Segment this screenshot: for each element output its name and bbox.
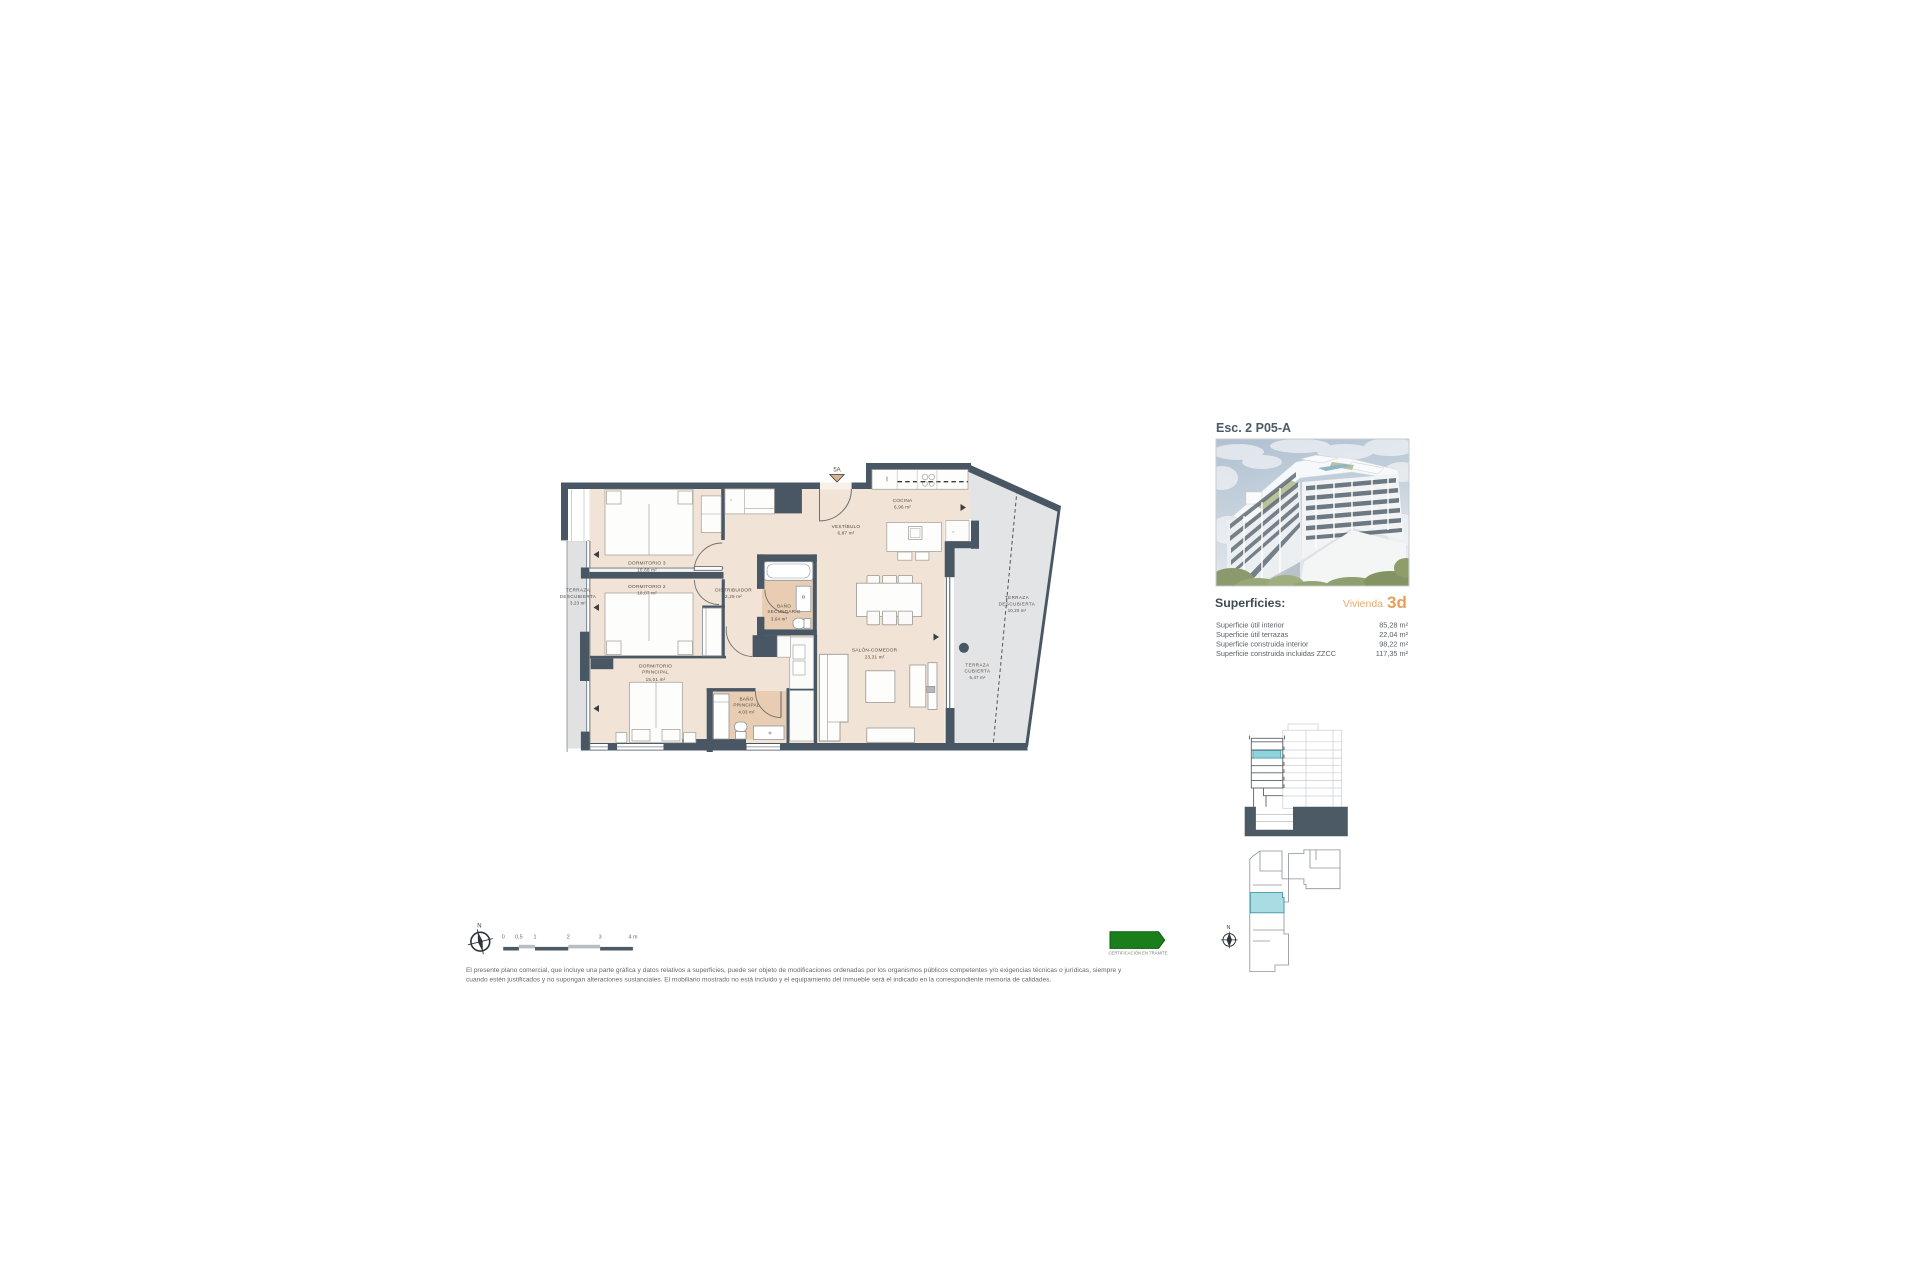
svg-text:TERRAZA: TERRAZA xyxy=(1005,595,1029,600)
svg-text:4,03 m²: 4,03 m² xyxy=(738,710,755,715)
svg-text:PRINCIPAL: PRINCIPAL xyxy=(642,669,669,675)
svg-text:N: N xyxy=(477,924,481,930)
svg-text:COCINA: COCINA xyxy=(893,498,913,504)
svg-text:cuando estén justificados y no: cuando estén justificados y no supongan … xyxy=(466,977,1052,984)
svg-text:SECUNDARIO: SECUNDARIO xyxy=(767,609,800,614)
svg-text:10,07 m²: 10,07 m² xyxy=(637,591,657,596)
svg-text:4 m: 4 m xyxy=(629,935,638,941)
svg-text:DISTRIBUIDOR: DISTRIBUIDOR xyxy=(715,588,752,594)
svg-text:3,23 m²: 3,23 m² xyxy=(570,601,586,606)
svg-text:BAÑO: BAÑO xyxy=(777,602,791,608)
svg-text:Vivienda: Vivienda xyxy=(1343,598,1383,610)
svg-text:PRINCIPAL: PRINCIPAL xyxy=(733,702,759,707)
svg-text:TERRAZA: TERRAZA xyxy=(566,588,590,593)
svg-text:N: N xyxy=(1227,925,1231,931)
svg-text:SALÓN-COMEDOR: SALÓN-COMEDOR xyxy=(852,647,898,654)
svg-text:15,01 m²: 15,01 m² xyxy=(646,677,666,682)
svg-text:0,5: 0,5 xyxy=(515,935,523,941)
svg-text:3d: 3d xyxy=(1387,593,1407,612)
svg-text:0: 0 xyxy=(502,935,505,941)
svg-text:98,22 m²: 98,22 m² xyxy=(1379,640,1408,649)
svg-text:DESCUBIERTA: DESCUBIERTA xyxy=(999,601,1036,606)
svg-text:Esc. 2 P05-A: Esc. 2 P05-A xyxy=(1216,421,1291,435)
svg-text:CUBIERTA: CUBIERTA xyxy=(965,669,991,674)
svg-text:6,96 m²: 6,96 m² xyxy=(894,505,911,510)
svg-text:3,64 m²: 3,64 m² xyxy=(771,616,788,621)
svg-text:VESTÍBULO: VESTÍBULO xyxy=(832,523,861,530)
svg-text:BAÑO: BAÑO xyxy=(739,695,753,701)
svg-text:5A: 5A xyxy=(833,468,840,474)
svg-text:117,35 m²: 117,35 m² xyxy=(1376,649,1409,658)
svg-text:6,87 m²: 6,87 m² xyxy=(838,530,855,535)
svg-text:DORMITORIO 3: DORMITORIO 3 xyxy=(628,561,666,567)
svg-text:1: 1 xyxy=(534,935,537,941)
svg-text:3: 3 xyxy=(599,935,602,941)
svg-text:DORMITORIO: DORMITORIO xyxy=(639,663,672,669)
svg-text:10,66 m²: 10,66 m² xyxy=(637,567,657,572)
svg-text:85,28 m²: 85,28 m² xyxy=(1379,621,1408,630)
svg-text:DORMITORIO 2: DORMITORIO 2 xyxy=(628,584,666,590)
svg-text:TERRAZA: TERRAZA xyxy=(965,663,989,668)
svg-text:2,29 m²: 2,29 m² xyxy=(725,594,742,599)
svg-text:23,31 m²: 23,31 m² xyxy=(865,654,885,659)
svg-text:6,47 m²: 6,47 m² xyxy=(970,675,986,680)
svg-text:CERTIFICACIÓN EN TRÁMITE: CERTIFICACIÓN EN TRÁMITE xyxy=(1109,951,1168,956)
svg-text:Superficie útil terrazas: Superficie útil terrazas xyxy=(1216,630,1289,639)
svg-text:Superficie útil interior: Superficie útil interior xyxy=(1216,621,1285,630)
svg-text:El presente plano comercial, q: El presente plano comercial, que incluye… xyxy=(466,967,1122,974)
svg-text:2: 2 xyxy=(567,935,570,941)
svg-text:10,20 m²: 10,20 m² xyxy=(1008,608,1027,613)
svg-text:22,04 m²: 22,04 m² xyxy=(1379,630,1408,639)
svg-text:Superficie construida incluida: Superficie construida incluidas ZZCC xyxy=(1216,649,1336,658)
svg-text:Superficies:: Superficies: xyxy=(1215,596,1285,610)
svg-text:DESCUBIERTA: DESCUBIERTA xyxy=(560,594,597,599)
svg-text:Superficie construida interior: Superficie construida interior xyxy=(1216,640,1309,649)
